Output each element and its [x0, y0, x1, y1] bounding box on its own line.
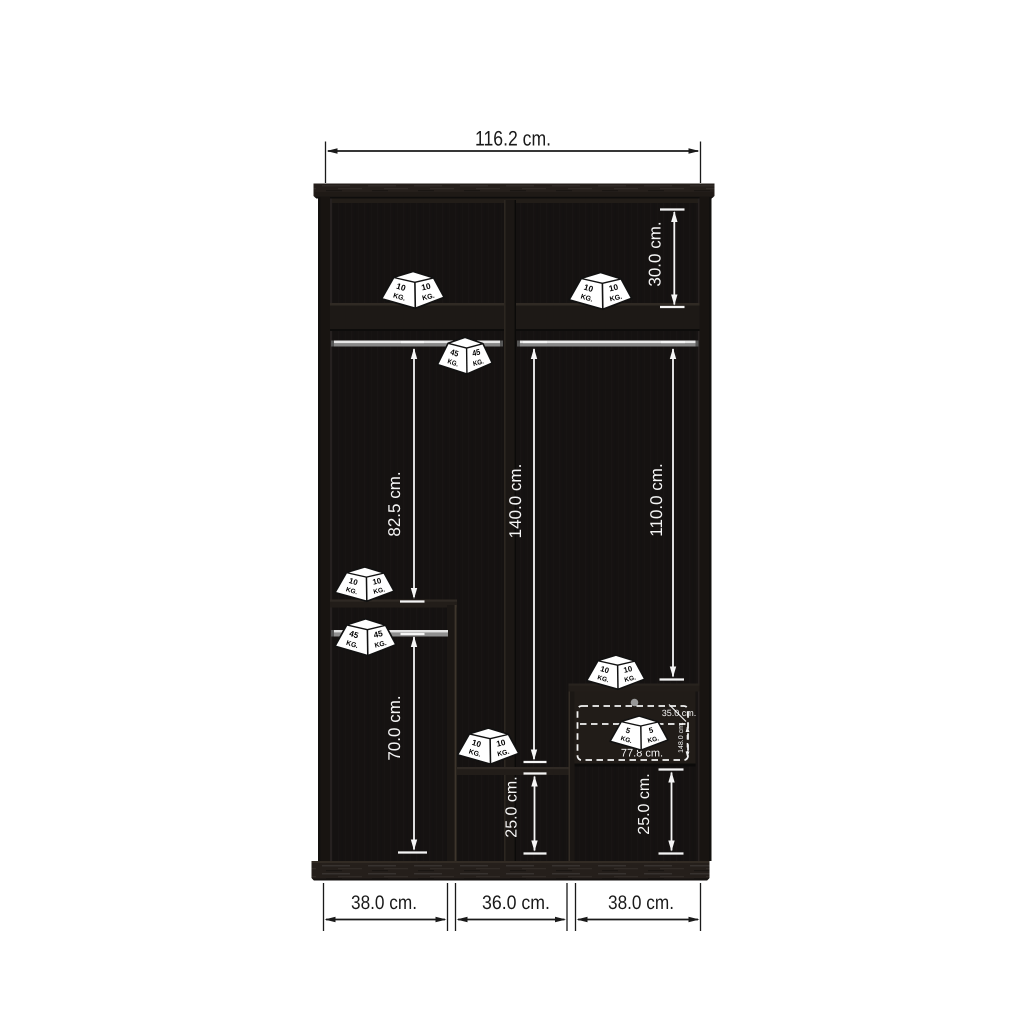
svg-text:38.0 cm.: 38.0 cm. [608, 892, 674, 914]
svg-text:25.0 cm.: 25.0 cm. [504, 776, 521, 837]
svg-text:36.0 cm.: 36.0 cm. [482, 892, 550, 914]
svg-text:110.0 cm.: 110.0 cm. [647, 463, 666, 536]
svg-text:148.0 cm.: 148.0 cm. [678, 722, 685, 753]
svg-text:116.2 cm.: 116.2 cm. [475, 128, 551, 151]
svg-text:82.5 cm.: 82.5 cm. [385, 471, 404, 536]
svg-text:30.0 cm.: 30.0 cm. [646, 221, 665, 286]
svg-text:35.0 cm.: 35.0 cm. [662, 708, 697, 718]
svg-text:70.0 cm.: 70.0 cm. [385, 695, 404, 760]
svg-text:25.0 cm.: 25.0 cm. [636, 773, 653, 834]
svg-text:38.0 cm.: 38.0 cm. [351, 892, 417, 914]
svg-text:140.0 cm.: 140.0 cm. [506, 464, 525, 539]
